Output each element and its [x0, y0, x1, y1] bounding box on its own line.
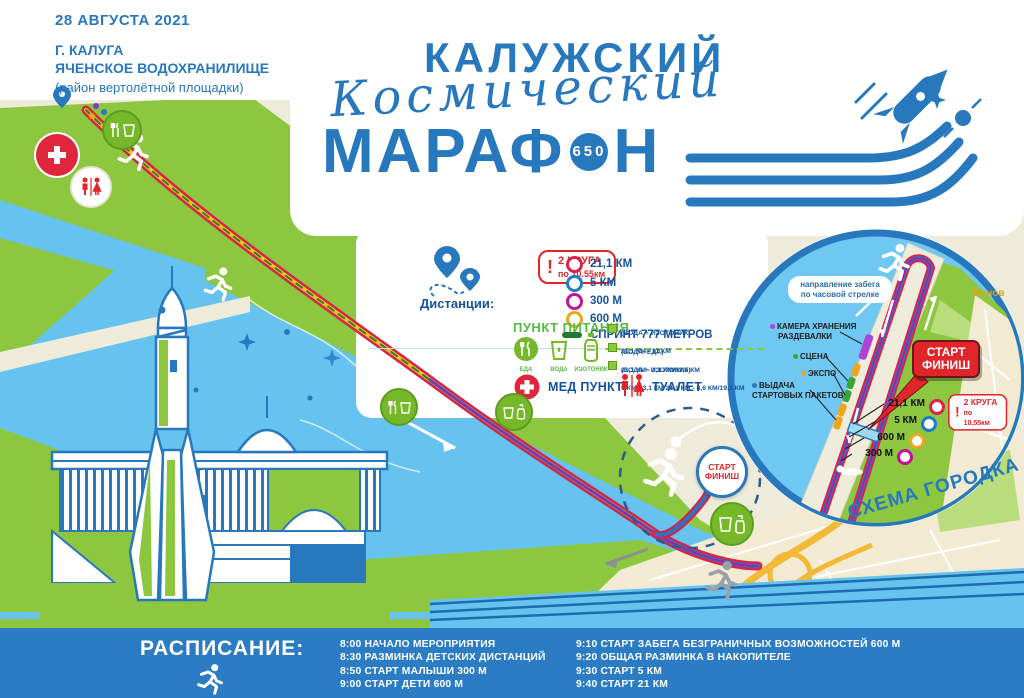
direction-line1: направление забега: [800, 280, 880, 289]
schedule-col2: 9:10 СТАРТ ЗАБЕГА БЕЗГРАНИЧНЫХ ВОЗМОЖНОС…: [576, 638, 900, 692]
distance-marker-300m: [897, 449, 913, 465]
schedule-item: 9:20 ОБЩАЯ РАЗМИНКА В НАКОПИТЕЛЕ: [576, 651, 900, 664]
food-station-badge: [102, 110, 142, 150]
schedule-item: 9:00 СТАРТ ДЕТИ 600 М: [340, 678, 546, 691]
event-city: Г. КАЛУГА: [55, 42, 124, 58]
water-cup-icon: [503, 406, 514, 419]
inset-distance-label: 5 КМ: [855, 415, 917, 426]
water-cup-icon: [548, 338, 570, 362]
schedule-col1: 8:00 НАЧАЛО МЕРОПРИЯТИЯ 8:30 РАЗМИНКА ДЕ…: [340, 638, 546, 692]
schedule-item: 9:10 СТАРТ ЗАБЕГА БЕЗГРАНИЧНЫХ ВОЗМОЖНОС…: [576, 638, 900, 651]
food-icon: [513, 336, 539, 362]
wc-badge: [70, 166, 112, 208]
marathon-poster: 28 АВГУСТА 2021 Г. КАЛУГА ЯЧЕНСКОЕ ВОДОХ…: [0, 0, 1024, 698]
storage-label-line1: КАМЕРА ХРАНЕНИЯ: [777, 322, 856, 331]
stage-label: СЦЕНА: [793, 352, 829, 362]
laps-line2: по 10.55км: [964, 409, 990, 427]
schedule-item: 8:30 РАЗМИНКА ДЕТСКИХ ДИСТАНЦИЙ: [340, 651, 546, 664]
food-icon-label: ЕДА: [511, 367, 541, 373]
medical-cross-icon: [45, 143, 69, 167]
exclamation-icon: !: [955, 404, 960, 420]
toilet-icon: [618, 372, 646, 400]
satellite-icon: [955, 110, 971, 126]
toilet-icon: [79, 176, 103, 198]
water-icon-label: ВОДА: [544, 367, 574, 373]
direction-note: направление забега по часовой стрелке: [788, 276, 892, 303]
food-note-head: (ВОДА+ЕДА): [621, 349, 663, 356]
inset-distance-label: 600 М: [843, 432, 905, 443]
water-cup-icon: [400, 401, 411, 414]
runner-icon: [188, 662, 232, 696]
exclamation-icon: !: [547, 257, 553, 278]
laps-line1: 2 КРУГА: [964, 398, 998, 407]
food-station-badge: [380, 388, 418, 426]
packets-marker-dot: [752, 383, 757, 388]
inset-laps-badge: ! 2 КРУГА по 10.55км: [948, 394, 1007, 431]
distance-label: 300 М: [590, 295, 622, 307]
food-point-marker: [608, 324, 617, 333]
food-station-isotonic: ИЗОТОНИК: [574, 332, 608, 373]
finish-label: ФИНИШ: [922, 358, 970, 372]
med-point-label: МЕД ПУНКТ: [548, 380, 623, 394]
bottle-icon: [734, 515, 746, 534]
med-point-badge: [36, 134, 78, 176]
schedule-title: РАСПИСАНИЕ:: [140, 637, 304, 661]
storage-label: КАМЕРА ХРАНЕНИЯ РАЗДЕВАЛКИ: [770, 322, 856, 341]
distance-marker-5km: [566, 275, 583, 292]
inset-distance-label: 21,1 КМ: [863, 398, 925, 409]
packets-label: ВЫДАЧА СТАРТОВЫХ ПАКЕТОВ: [752, 381, 843, 400]
food-icon: [109, 122, 121, 138]
distance-marker-600m: [909, 433, 925, 449]
isotonic-icon-label: ИЗОТОНИК: [574, 367, 608, 373]
schedule-item: 9:40 СТАРТ 21 КМ: [576, 678, 900, 691]
water-cup-icon: [123, 123, 135, 137]
logo-line3-right: Н: [613, 116, 661, 187]
distance-marker-300m: [566, 293, 583, 310]
schedule-item: 9:30 СТАРТ 5 КМ: [576, 665, 900, 678]
food-point-marker: [608, 361, 617, 370]
distance-marker-5km: [921, 416, 937, 432]
finish-label: ФИНИШ: [705, 472, 739, 482]
distances-label: Дистанции:: [420, 296, 494, 311]
logo-650-badge: 650: [567, 130, 611, 174]
water-station-badge: [495, 393, 533, 431]
food-point-marker: [608, 343, 617, 352]
food-icon: [387, 400, 398, 415]
bottle-icon: [582, 332, 600, 362]
food-station-food: ЕДА: [511, 336, 541, 373]
expo-label: ЭКСПО: [801, 369, 836, 379]
stage-marker-dot: [793, 354, 798, 359]
schedule-item: 8:00 НАЧАЛО МЕРОПРИЯТИЯ: [340, 638, 546, 651]
logo-line3: МАРАФ 650 Н: [322, 116, 661, 187]
logo-line3-left: МАРАФ: [322, 116, 565, 187]
storage-marker-dot: [770, 324, 775, 329]
food-note-head: (ВОДА + ИЗОТОНИК): [621, 330, 691, 337]
event-venue: ЯЧЕНСКОЕ ВОДОХРАНИЛИЩЕ: [55, 60, 269, 76]
inset-start-finish-badge: СТАРТ ФИНИШ: [912, 340, 980, 378]
distance-label: 5 КМ: [590, 277, 616, 289]
distance-marker-21km: [929, 399, 945, 415]
schedule-item: 8:50 СТАРТ МАЛЫШИ 300 М: [340, 665, 546, 678]
distance-label: 21,1 КМ: [590, 258, 632, 270]
packets-label-line1: ВЫДАЧА: [759, 381, 795, 390]
bottle-icon: [516, 404, 526, 420]
start-label: СТАРТ: [927, 345, 966, 359]
food-station-water: ВОДА: [544, 338, 574, 373]
event-date: 28 АВГУСТА 2021: [55, 12, 190, 29]
water-cup-icon: [719, 516, 732, 532]
direction-line2: по часовой стрелке: [801, 290, 879, 299]
wc-label: ТУАЛЕТ: [652, 380, 702, 394]
event-venue-note: (район вертолётной площадки): [55, 80, 244, 95]
expo-label-text: ЭКСПО: [808, 369, 836, 378]
distance-marker-21km: [566, 256, 583, 273]
schedule-bar: РАСПИСАНИЕ: 8:00 НАЧАЛО МЕРОПРИЯТИЯ 8:30…: [0, 628, 1024, 698]
stage-label-text: СЦЕНА: [800, 352, 829, 361]
packets-label-line2: СТАРТОВЫХ ПАКЕТОВ: [752, 391, 843, 400]
start-finish-marker: СТАРТ ФИНИШ: [696, 446, 748, 498]
inset-distance-label: 300 М: [831, 448, 893, 459]
expo-marker-dot: [801, 371, 806, 376]
district-map-label: Иннов: [973, 288, 1005, 299]
water-station-badge: [710, 502, 754, 546]
storage-label-line2: РАЗДЕВАЛКИ: [778, 332, 832, 341]
